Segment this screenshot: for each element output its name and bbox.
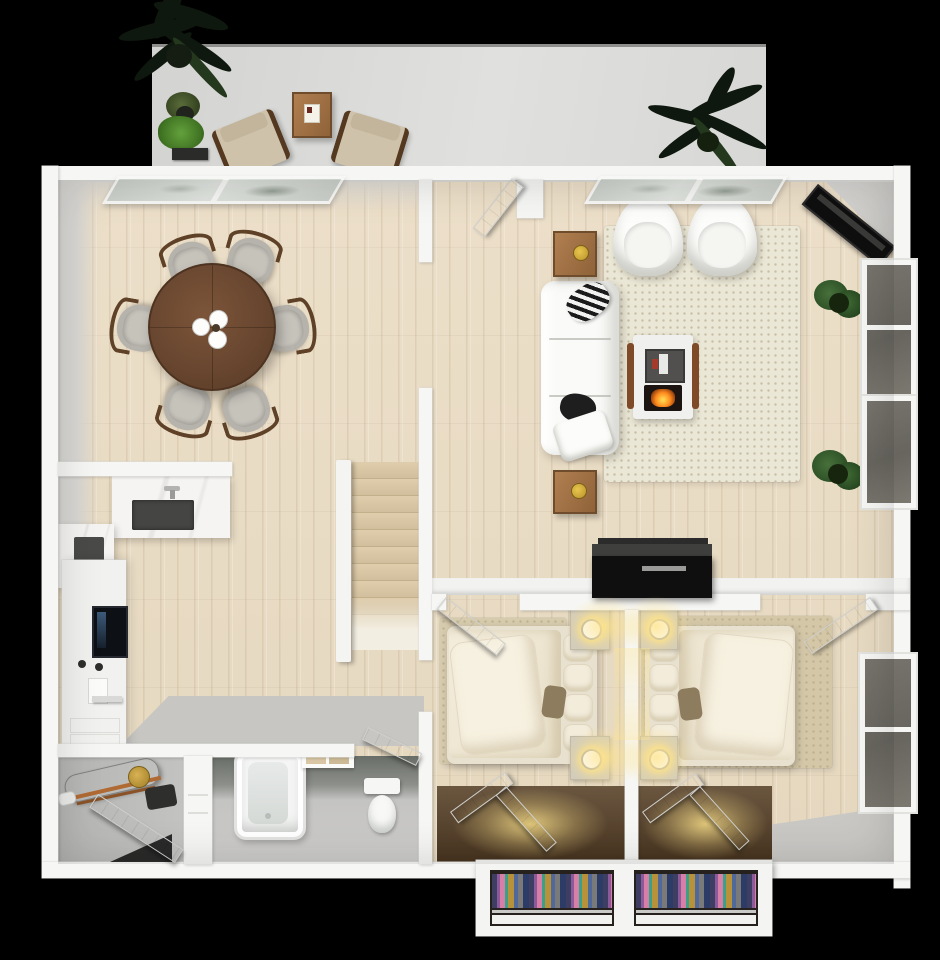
art-frame xyxy=(645,349,685,383)
fireplace-media-unit xyxy=(633,335,693,419)
nightstand-2b xyxy=(640,736,678,780)
floor-plan-scene xyxy=(0,0,940,960)
potted-plant-living-1 xyxy=(812,276,868,330)
wall-bath-side xyxy=(419,712,432,864)
kitchen-island xyxy=(112,476,230,538)
side-table-north xyxy=(553,231,597,277)
black-dresser xyxy=(592,544,712,598)
hanging-clothes xyxy=(636,874,756,908)
firebox xyxy=(644,385,682,411)
closet-cell-2 xyxy=(634,870,758,926)
plant-pot xyxy=(828,464,848,484)
accent-pillow xyxy=(677,687,703,722)
headboard-cushion xyxy=(563,664,593,692)
palm-plant-patio-right xyxy=(645,84,771,176)
headboard-cushion xyxy=(649,664,679,692)
nightstand-1a xyxy=(570,606,610,650)
planter-tray xyxy=(172,148,208,160)
toilet-tank xyxy=(364,778,400,794)
window-bedroom2 xyxy=(860,654,916,812)
cooktop xyxy=(132,500,194,530)
headboard-cushion xyxy=(563,694,593,722)
nightstand-1b xyxy=(570,736,610,780)
closet-base xyxy=(492,915,612,924)
staircase-landing xyxy=(352,598,419,650)
lamp xyxy=(649,749,670,770)
lamp xyxy=(649,619,670,640)
window-living-2 xyxy=(862,396,916,508)
book-mark xyxy=(307,107,312,113)
faucet-fixture-1 xyxy=(78,660,86,668)
candle-centerpiece xyxy=(192,310,238,350)
potted-plant-living-2 xyxy=(810,446,868,502)
plant-pot xyxy=(829,293,849,313)
candle xyxy=(573,245,589,261)
lamp xyxy=(581,619,602,640)
brass-valve xyxy=(128,766,150,788)
drawer xyxy=(70,718,120,733)
headboard-cushion xyxy=(649,694,679,722)
towel-bar xyxy=(92,696,122,702)
utility-cabinet-divider xyxy=(184,756,212,864)
staircase-railing xyxy=(336,460,351,662)
fireplace-log-right xyxy=(692,343,699,409)
closet-base xyxy=(636,915,756,924)
closet-cell-1 xyxy=(490,870,614,926)
palm-pot xyxy=(697,132,719,152)
wall-left xyxy=(42,166,58,878)
tub-drain xyxy=(265,813,271,819)
window-top-right xyxy=(584,176,788,204)
kitchen-cabinet-column xyxy=(62,560,126,754)
toilet-bowl xyxy=(368,795,396,833)
window-living-1 xyxy=(862,260,916,402)
candle xyxy=(571,483,587,499)
nightstand-2a xyxy=(640,606,678,650)
wall-center xyxy=(419,388,432,660)
wall-kitchen-top xyxy=(58,462,232,476)
hanging-clothes xyxy=(492,874,612,908)
accent-pillow xyxy=(541,685,567,720)
lamp xyxy=(581,749,602,770)
toilet xyxy=(364,778,400,836)
closet-unit xyxy=(476,860,772,936)
dresser-handle xyxy=(642,566,686,571)
side-table-south xyxy=(553,470,597,514)
closet-rod xyxy=(492,910,612,913)
window-top-left xyxy=(102,176,346,204)
west-wall-face xyxy=(58,182,98,564)
fireplace-log-left xyxy=(627,343,634,409)
patio-side-table xyxy=(292,92,332,138)
wall-light-streak xyxy=(614,648,650,740)
large-pillow xyxy=(693,632,795,759)
wall-oven xyxy=(92,606,128,658)
closet-rod xyxy=(636,910,756,913)
faucet-fixture-2 xyxy=(95,663,103,671)
bathtub xyxy=(234,750,306,840)
palm-pot xyxy=(166,44,192,68)
wall-entry-left xyxy=(419,180,432,262)
